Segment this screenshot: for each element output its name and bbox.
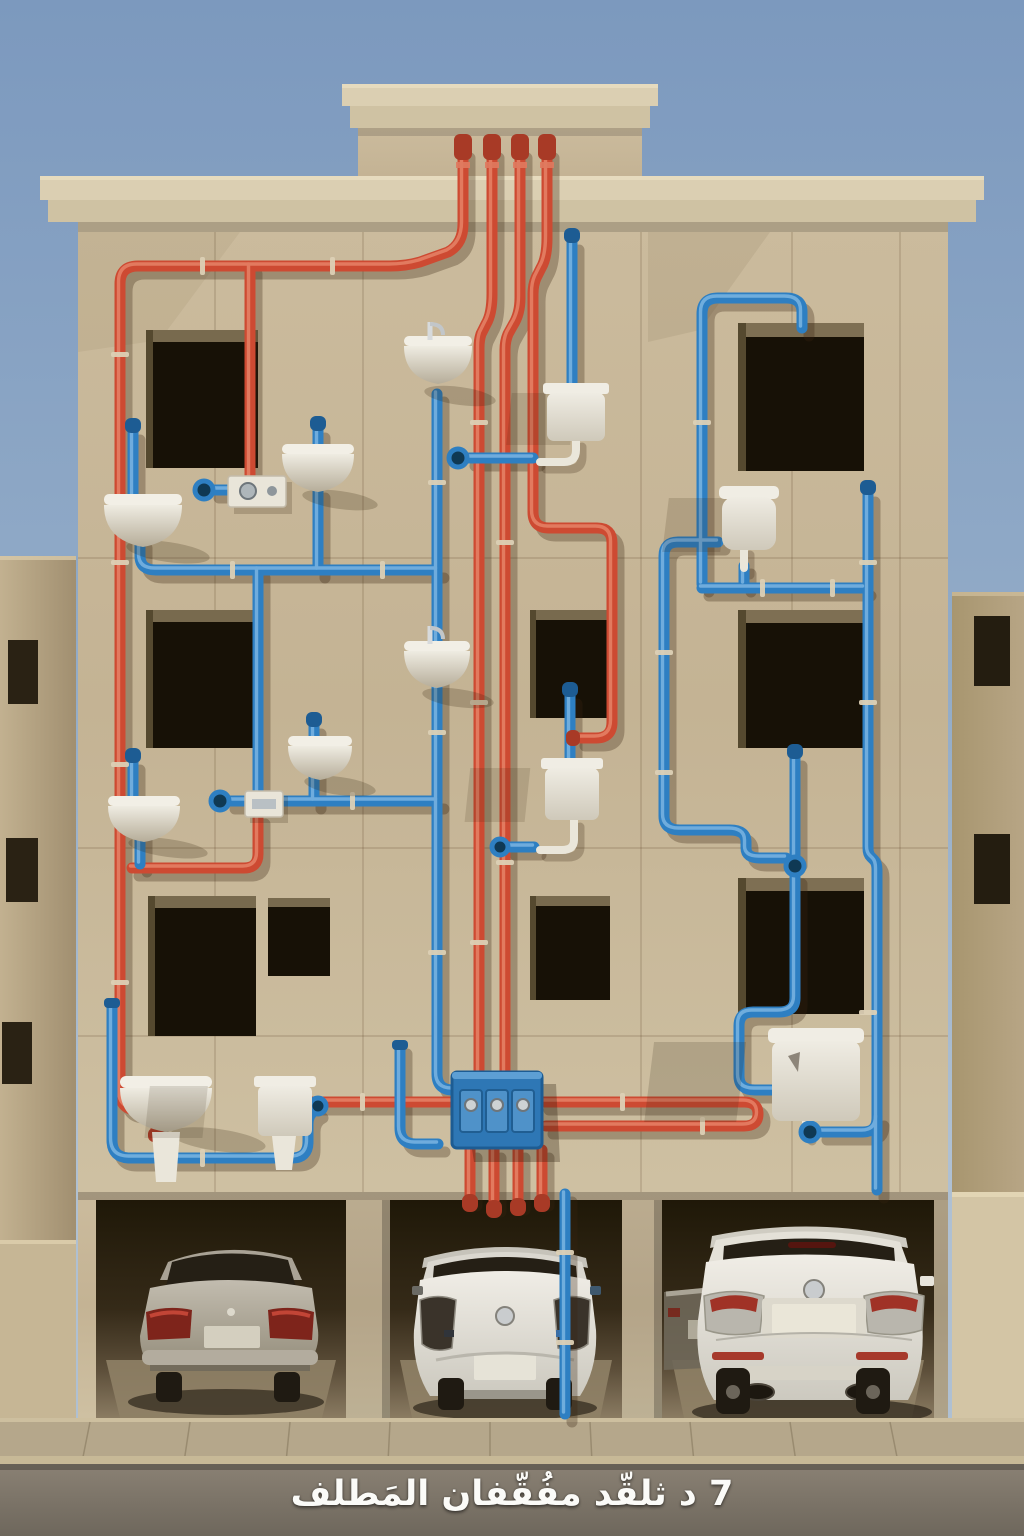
meter-box [245, 791, 288, 823]
window-opening [530, 896, 610, 1000]
neighbor-building-right [952, 592, 1024, 1418]
taillight [420, 1297, 456, 1351]
neighbor-building-left [0, 556, 76, 1418]
window-opening [146, 330, 258, 468]
window-opening [738, 323, 864, 471]
scene: 7 د ثلقّد مفُقّفان المَطلف [0, 0, 1024, 1536]
valve-knob [491, 1099, 503, 1111]
window-opening [738, 610, 864, 748]
side-mirror [412, 1286, 423, 1295]
valve-knob [465, 1099, 477, 1111]
badge [804, 1280, 824, 1300]
meter-dial [240, 483, 256, 499]
window-opening [268, 898, 330, 976]
license-plate [772, 1304, 856, 1334]
window-opening [148, 896, 256, 1036]
wheel [156, 1372, 182, 1402]
side-mirror [920, 1276, 934, 1286]
manifold-box [452, 1072, 560, 1162]
meter-box [228, 476, 292, 514]
cistern-pedestal [272, 1136, 296, 1170]
side-mirror [590, 1286, 601, 1295]
wheel [438, 1378, 464, 1410]
sink-pedestal [152, 1132, 180, 1182]
window-opening [146, 610, 258, 748]
license-plate [474, 1354, 536, 1380]
car-white-suv [692, 1226, 934, 1426]
valve-knob [517, 1099, 529, 1111]
license-plate [204, 1326, 260, 1348]
caption-text: 7 د ثلقّد مفُقّفان المَطلف [0, 1474, 1024, 1514]
badge [496, 1307, 514, 1325]
facade-illustration [0, 0, 1024, 1536]
wheel [274, 1372, 300, 1402]
